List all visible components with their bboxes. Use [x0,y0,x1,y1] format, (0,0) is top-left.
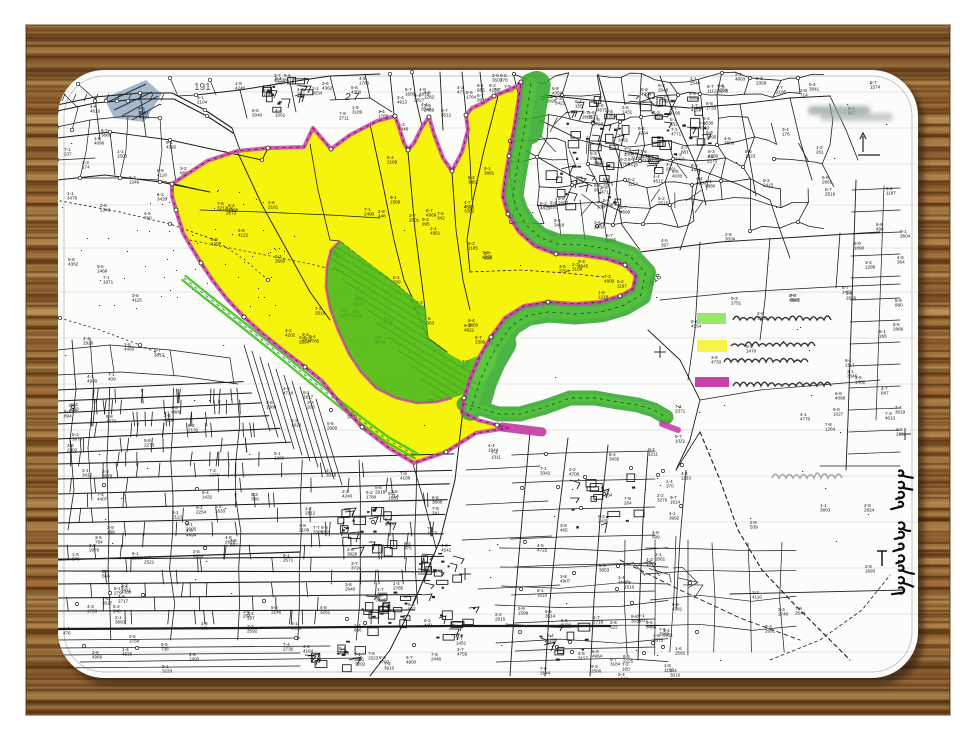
svg-text:1-6111: 1-6111 [201,621,208,631]
svg-text:191: 191 [194,82,211,93]
svg-text:2 7: 2 7 [344,92,359,103]
